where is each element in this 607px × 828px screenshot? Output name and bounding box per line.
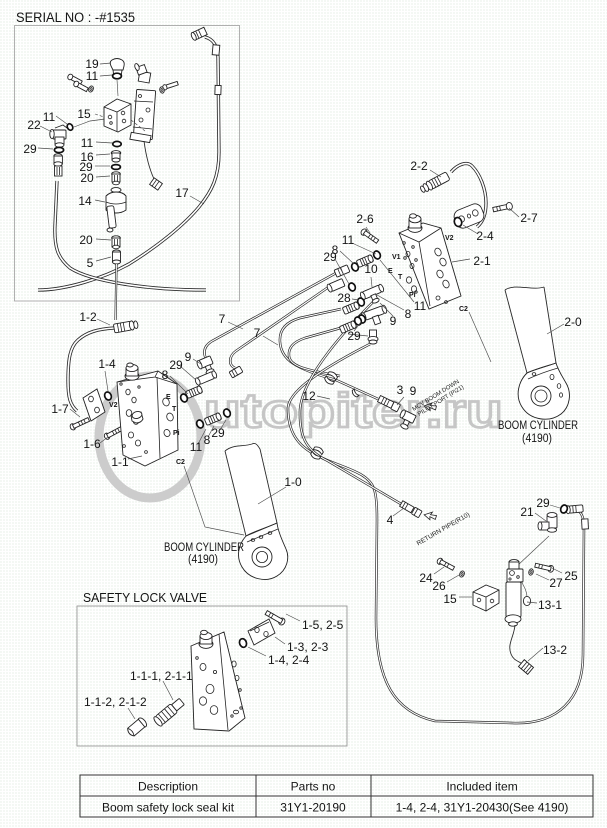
svg-text:2-6: 2-6: [356, 212, 374, 226]
svg-text:27: 27: [549, 576, 563, 590]
svg-text:11: 11: [190, 440, 203, 454]
svg-text:SAFETY LOCK VALVE: SAFETY LOCK VALVE: [83, 590, 207, 605]
svg-text:29: 29: [536, 496, 550, 510]
svg-text:1-3, 2-3: 1-3, 2-3: [287, 640, 329, 654]
svg-text:Description: Description: [138, 780, 198, 794]
svg-text:22: 22: [27, 118, 41, 132]
svg-text:E: E: [388, 268, 393, 275]
svg-text:T: T: [172, 406, 177, 413]
svg-text:24: 24: [419, 571, 433, 585]
svg-text:2-7: 2-7: [520, 211, 538, 225]
svg-text:1-1-1, 2-1-1: 1-1-1, 2-1-1: [130, 669, 193, 683]
svg-text:Pi: Pi: [409, 292, 416, 299]
svg-text:Boom safety lock seal kit: Boom safety lock seal kit: [102, 801, 235, 815]
svg-text:13-1: 13-1: [538, 598, 562, 612]
svg-text:1-7: 1-7: [51, 402, 69, 416]
svg-text:(4190): (4190): [522, 433, 552, 445]
svg-text:15: 15: [443, 592, 457, 606]
svg-text:11: 11: [81, 136, 94, 150]
svg-text:12: 12: [302, 389, 316, 403]
svg-text:1-1-2, 2-1-2: 1-1-2, 2-1-2: [84, 695, 147, 709]
svg-text:7: 7: [254, 326, 261, 340]
svg-text:10: 10: [364, 262, 378, 276]
svg-text:11: 11: [414, 299, 427, 313]
svg-text:13-2: 13-2: [543, 643, 567, 657]
svg-text:29: 29: [323, 250, 337, 264]
svg-text:29: 29: [169, 358, 183, 372]
svg-text:15: 15: [77, 107, 91, 121]
svg-text:Pi: Pi: [173, 430, 180, 437]
svg-text:V2: V2: [445, 235, 454, 242]
svg-text:1-4, 2-4: 1-4, 2-4: [268, 653, 310, 667]
svg-text:BOOM CYLINDER: BOOM CYLINDER: [164, 542, 244, 554]
svg-text:C2: C2: [459, 306, 468, 313]
svg-text:7: 7: [219, 312, 226, 326]
svg-text:28: 28: [337, 291, 351, 305]
svg-text:29: 29: [211, 426, 225, 440]
svg-text:(4190): (4190): [188, 554, 218, 566]
svg-text:1-4: 1-4: [98, 357, 116, 371]
svg-text:T: T: [398, 274, 403, 281]
svg-text:9: 9: [185, 350, 192, 364]
svg-text:11: 11: [86, 69, 99, 83]
svg-text:C2: C2: [176, 459, 185, 466]
svg-text:1-4, 2-4, 31Y1-20430(See 4190): 1-4, 2-4, 31Y1-20430(See 4190): [396, 801, 569, 815]
svg-text:20: 20: [79, 233, 93, 247]
svg-text:8: 8: [162, 368, 169, 382]
svg-text:4: 4: [387, 513, 394, 527]
svg-text:V2: V2: [109, 402, 118, 409]
svg-text:BOOM CYLINDER: BOOM CYLINDER: [498, 420, 578, 432]
svg-text:20: 20: [80, 171, 94, 185]
svg-text:V1: V1: [392, 254, 401, 261]
svg-text:2-4: 2-4: [476, 229, 494, 243]
svg-text:1-1: 1-1: [111, 455, 129, 469]
svg-text:14: 14: [78, 194, 92, 208]
svg-text:1-6: 1-6: [83, 437, 101, 451]
svg-text:11: 11: [43, 110, 56, 124]
svg-text:8: 8: [405, 307, 412, 321]
svg-text:Parts no: Parts no: [291, 780, 336, 794]
svg-text:5: 5: [87, 256, 94, 270]
svg-text:26: 26: [432, 579, 446, 593]
svg-text:Included item: Included item: [446, 780, 517, 794]
svg-text:21: 21: [520, 505, 534, 519]
svg-text:31Y1-20190: 31Y1-20190: [280, 801, 346, 815]
svg-text:2-1: 2-1: [473, 254, 491, 268]
svg-text:17: 17: [175, 186, 189, 200]
svg-text:1-2: 1-2: [79, 310, 97, 324]
svg-text:29: 29: [23, 142, 37, 156]
svg-text:25: 25: [564, 569, 578, 583]
svg-text:2-0: 2-0: [564, 315, 582, 329]
svg-text:9: 9: [410, 384, 417, 398]
svg-text:3: 3: [397, 383, 404, 397]
svg-text:11: 11: [342, 233, 355, 247]
svg-text:1-0: 1-0: [284, 475, 302, 489]
svg-text:29: 29: [347, 329, 361, 343]
svg-text:2-2: 2-2: [410, 159, 428, 173]
svg-text:9: 9: [390, 314, 397, 328]
svg-text:E: E: [166, 394, 171, 401]
svg-text:1-5, 2-5: 1-5, 2-5: [302, 618, 344, 632]
svg-text:SERIAL NO : -#1535: SERIAL NO : -#1535: [16, 10, 135, 25]
svg-text:8: 8: [204, 433, 211, 447]
